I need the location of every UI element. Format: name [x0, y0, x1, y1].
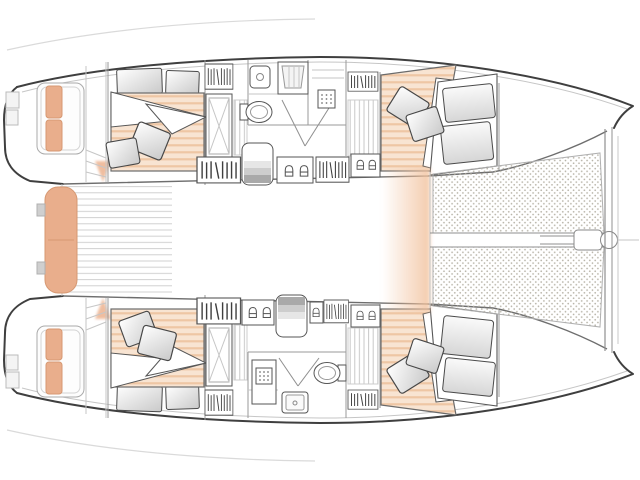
- anchor-roller: [601, 232, 618, 249]
- port-transom-platform: [6, 83, 84, 154]
- headboard-cushion: [117, 68, 163, 95]
- berth-cushion: [440, 315, 494, 358]
- headboard-cushion: [166, 385, 200, 409]
- transom-cushion: [46, 329, 62, 360]
- cockpit-seat-corner: [95, 161, 111, 182]
- walkway: [348, 328, 378, 384]
- jar-icon: [313, 308, 319, 317]
- shelf-unit: [348, 390, 378, 409]
- headboard-cushion: [117, 385, 163, 412]
- jar-icon: [369, 160, 375, 169]
- companionway-stairs: [276, 295, 307, 337]
- berth-cushion: [442, 83, 495, 122]
- companionway-stairs: [242, 143, 273, 185]
- shelf-unit: [197, 157, 241, 183]
- starboard-hull-interior: [108, 295, 499, 420]
- floorplan-canvas: [0, 0, 640, 480]
- port-forward-cabin: [381, 65, 497, 175]
- shelf-unit: [197, 298, 241, 324]
- transom-cushion: [46, 120, 62, 151]
- berth-cushion: [440, 121, 494, 164]
- swim-step: [6, 92, 19, 108]
- port-hull-interior: [106, 60, 499, 185]
- transom-cushion: [46, 86, 62, 118]
- door-swing: [279, 358, 298, 386]
- shelf-unit: [205, 64, 233, 89]
- shelf-unit: [316, 157, 349, 182]
- jar-icon: [263, 308, 270, 318]
- swim-step: [6, 110, 18, 125]
- walkway: [348, 100, 378, 156]
- jar-icon: [285, 166, 293, 177]
- forward-cockpit-glow: [382, 168, 430, 312]
- starboard-transom-platform: [6, 326, 84, 397]
- bench-step: [37, 262, 45, 274]
- transom-cushion: [46, 362, 62, 394]
- port-aft-cabin: [106, 68, 206, 171]
- jar-icon: [369, 311, 375, 320]
- stern-cockpit: [37, 161, 172, 319]
- door-swing: [282, 100, 305, 146]
- walkway: [234, 325, 247, 380]
- port-bathroom: [234, 60, 346, 156]
- bench-step: [37, 204, 45, 216]
- jar-icon: [249, 308, 256, 318]
- headboard-cushion: [166, 70, 200, 94]
- toilet-icon: [314, 363, 346, 384]
- vanity-sink: [250, 66, 270, 88]
- shelf-unit: [324, 300, 348, 323]
- shelf-unit: [205, 390, 233, 415]
- catamaran-floorplan: [0, 0, 640, 480]
- port-wardrobe: [205, 64, 233, 158]
- starboard-bathroom: [234, 324, 346, 418]
- starboard-forward-cabin: [381, 305, 497, 415]
- shelf-unit: [348, 72, 378, 91]
- swim-step: [6, 372, 19, 388]
- jar-icon: [357, 160, 363, 169]
- cockpit-seat-corner: [95, 298, 111, 319]
- storage-locker: [351, 305, 380, 327]
- pillow-icon: [106, 137, 141, 168]
- jar-icon: [357, 311, 363, 320]
- berth-cushion: [442, 357, 495, 396]
- jar-icon: [300, 166, 308, 177]
- toilet-icon: [240, 102, 272, 123]
- swim-step: [6, 355, 18, 370]
- starboard-wardrobe: [205, 324, 233, 415]
- starboard-aft-cabin: [111, 309, 206, 412]
